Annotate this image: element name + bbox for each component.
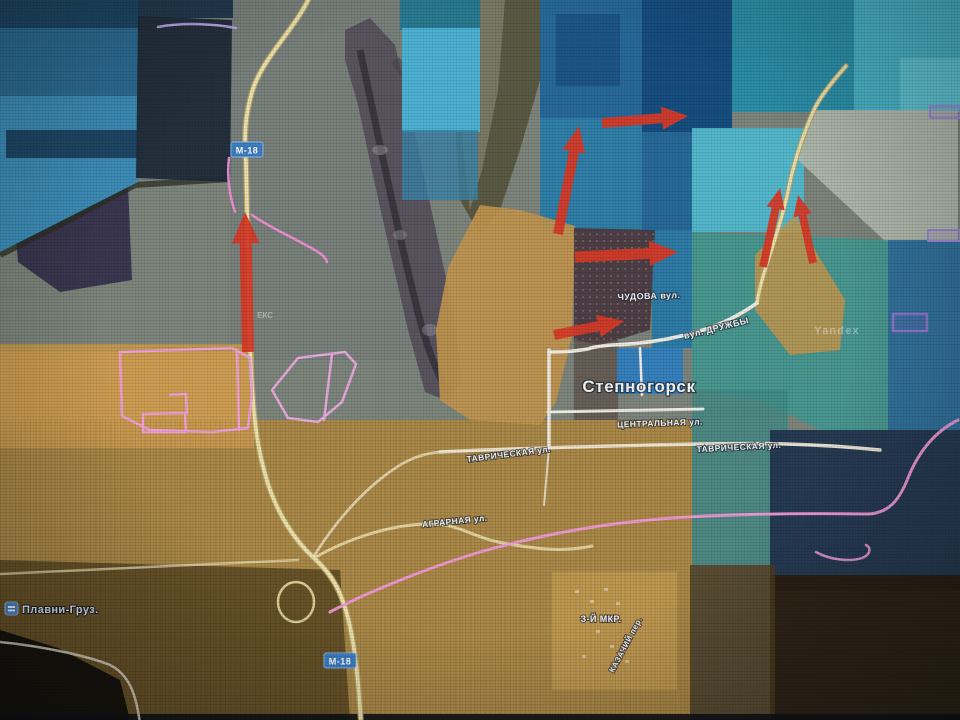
faint-partial-label: ЕКС <box>257 311 273 320</box>
road-badge-m18-2: М-18 <box>324 653 356 668</box>
purple-rect-3 <box>893 314 927 331</box>
purple-rect-2 <box>928 230 960 241</box>
map-image: М-18М-18 ЧУДОВА вул.вул. ДРУЖБЫСтепногор… <box>0 0 960 720</box>
town-label-stepnogorsk: Степногорск <box>582 377 695 396</box>
place-icon <box>5 602 18 615</box>
place-label-plavni-gruz: Плавни-Груз. <box>22 604 99 616</box>
road-badge-text: М-18 <box>329 657 352 667</box>
district-label-3rd-mkr: З-Й МКР. <box>581 613 622 624</box>
road-badge-m18-1: М-18 <box>231 142 263 157</box>
map-canvas[interactable]: М-18М-18 ЧУДОВА вул.вул. ДРУЖБЫСтепногор… <box>0 0 960 720</box>
road-badge-text: М-18 <box>236 146 259 156</box>
yandex-watermark: Yandex <box>814 325 860 337</box>
purple-rect-1 <box>930 106 960 118</box>
